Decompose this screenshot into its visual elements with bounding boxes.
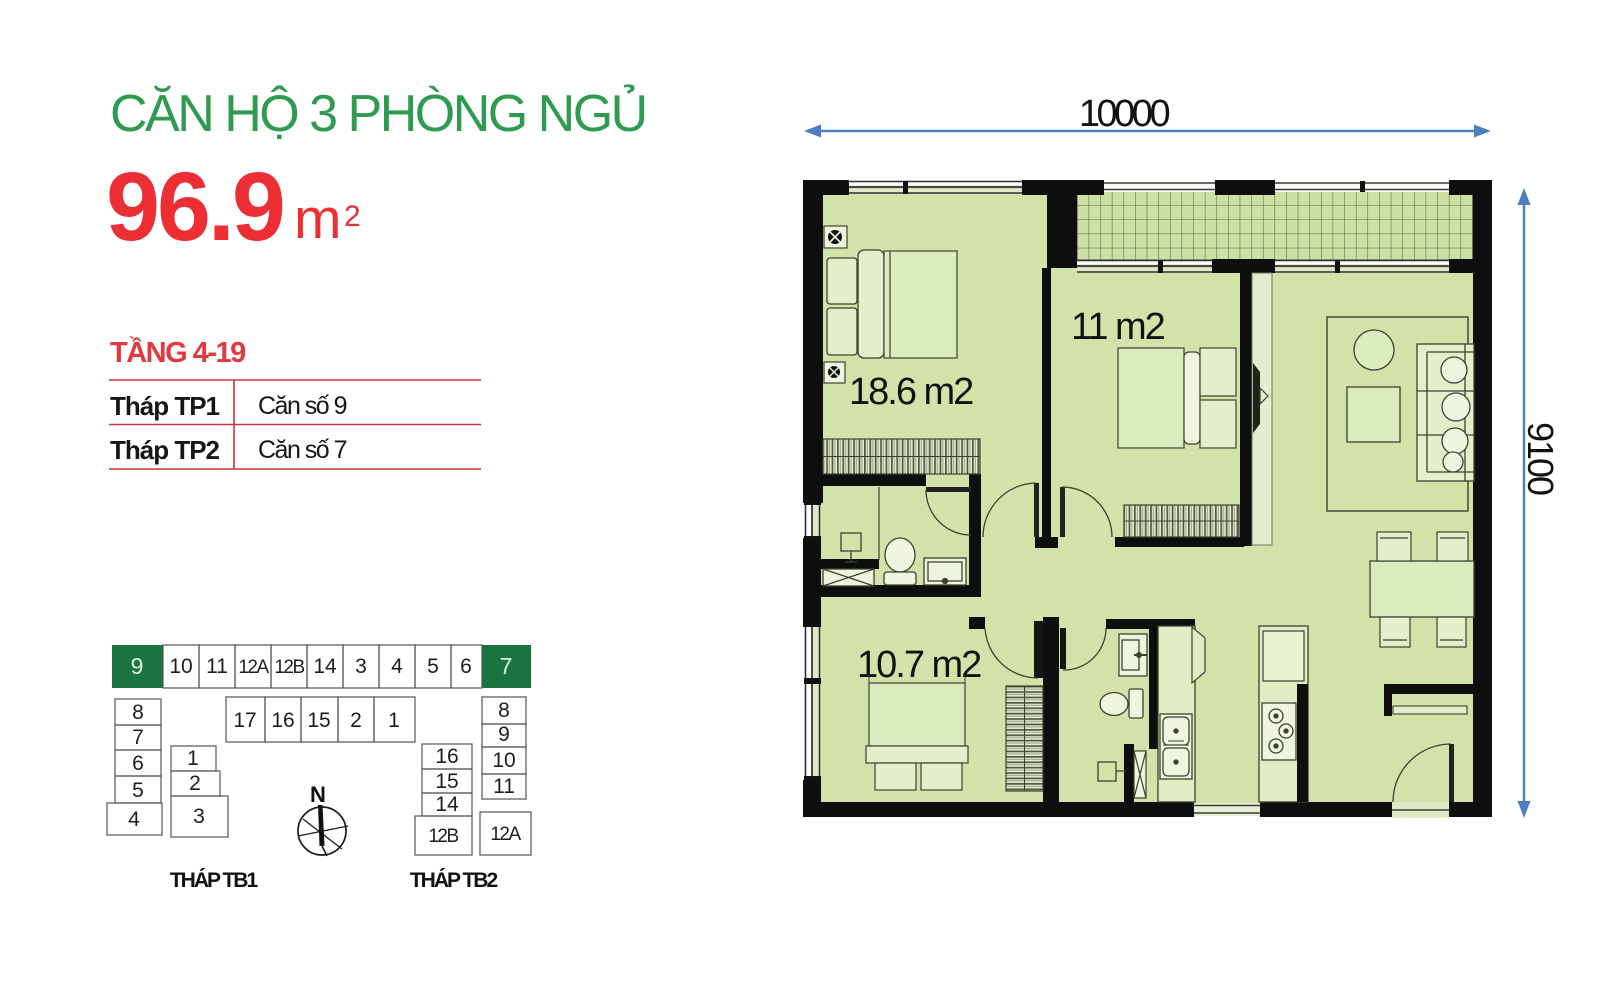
svg-text:TẦNG 4-19: TẦNG 4-19 [110,335,246,369]
svg-text:15: 15 [307,709,330,732]
svg-text:3: 3 [193,805,205,828]
svg-text:12B: 12B [428,826,458,847]
svg-text:7: 7 [132,726,144,749]
svg-text:11: 11 [206,655,228,678]
svg-text:9100: 9100 [1520,422,1561,495]
svg-text:N: N [310,782,326,807]
svg-text:9: 9 [498,723,510,746]
svg-text:10: 10 [169,655,192,678]
svg-text:16: 16 [271,709,294,732]
svg-text:11: 11 [493,775,515,798]
svg-text:2: 2 [344,200,361,233]
svg-text:14: 14 [435,793,459,816]
svg-text:15: 15 [435,770,458,793]
svg-text:12A: 12A [490,824,521,845]
svg-text:Tháp TP2: Tháp TP2 [110,435,220,465]
svg-text:9: 9 [131,653,144,679]
svg-text:11 m2: 11 m2 [1071,306,1165,348]
svg-text:2: 2 [189,772,201,795]
svg-text:5: 5 [132,779,144,802]
svg-text:10000: 10000 [1079,93,1170,135]
svg-text:6: 6 [132,752,144,775]
svg-text:4: 4 [128,808,140,831]
svg-text:14: 14 [313,655,337,678]
svg-text:m: m [294,187,341,251]
svg-text:8: 8 [132,701,144,724]
svg-text:1: 1 [187,747,199,770]
svg-text:4: 4 [391,655,403,678]
svg-text:Căn số 7: Căn số 7 [258,436,347,464]
svg-text:CĂN HỘ 3 PHÒNG NGỦ: CĂN HỘ 3 PHÒNG NGỦ [110,84,646,143]
svg-text:6: 6 [460,655,472,678]
svg-text:7: 7 [500,653,513,679]
svg-text:Căn số 9: Căn số 9 [258,392,347,420]
svg-text:8: 8 [498,699,510,722]
svg-text:10.7 m2: 10.7 m2 [857,644,981,686]
svg-text:12B: 12B [274,657,304,678]
svg-text:1: 1 [388,709,400,732]
svg-text:17: 17 [233,709,256,732]
svg-text:5: 5 [427,655,439,678]
svg-text:12A: 12A [238,657,269,678]
svg-text:3: 3 [355,655,367,678]
svg-text:96.9: 96.9 [106,152,283,261]
svg-text:18.6 m2: 18.6 m2 [849,371,973,413]
svg-text:THÁP TB2: THÁP TB2 [410,869,498,892]
svg-text:THÁP TB1: THÁP TB1 [170,869,259,892]
svg-text:2: 2 [350,709,362,732]
svg-text:10: 10 [492,749,515,772]
svg-text:Tháp TP1: Tháp TP1 [110,391,220,421]
svg-text:16: 16 [435,745,458,768]
